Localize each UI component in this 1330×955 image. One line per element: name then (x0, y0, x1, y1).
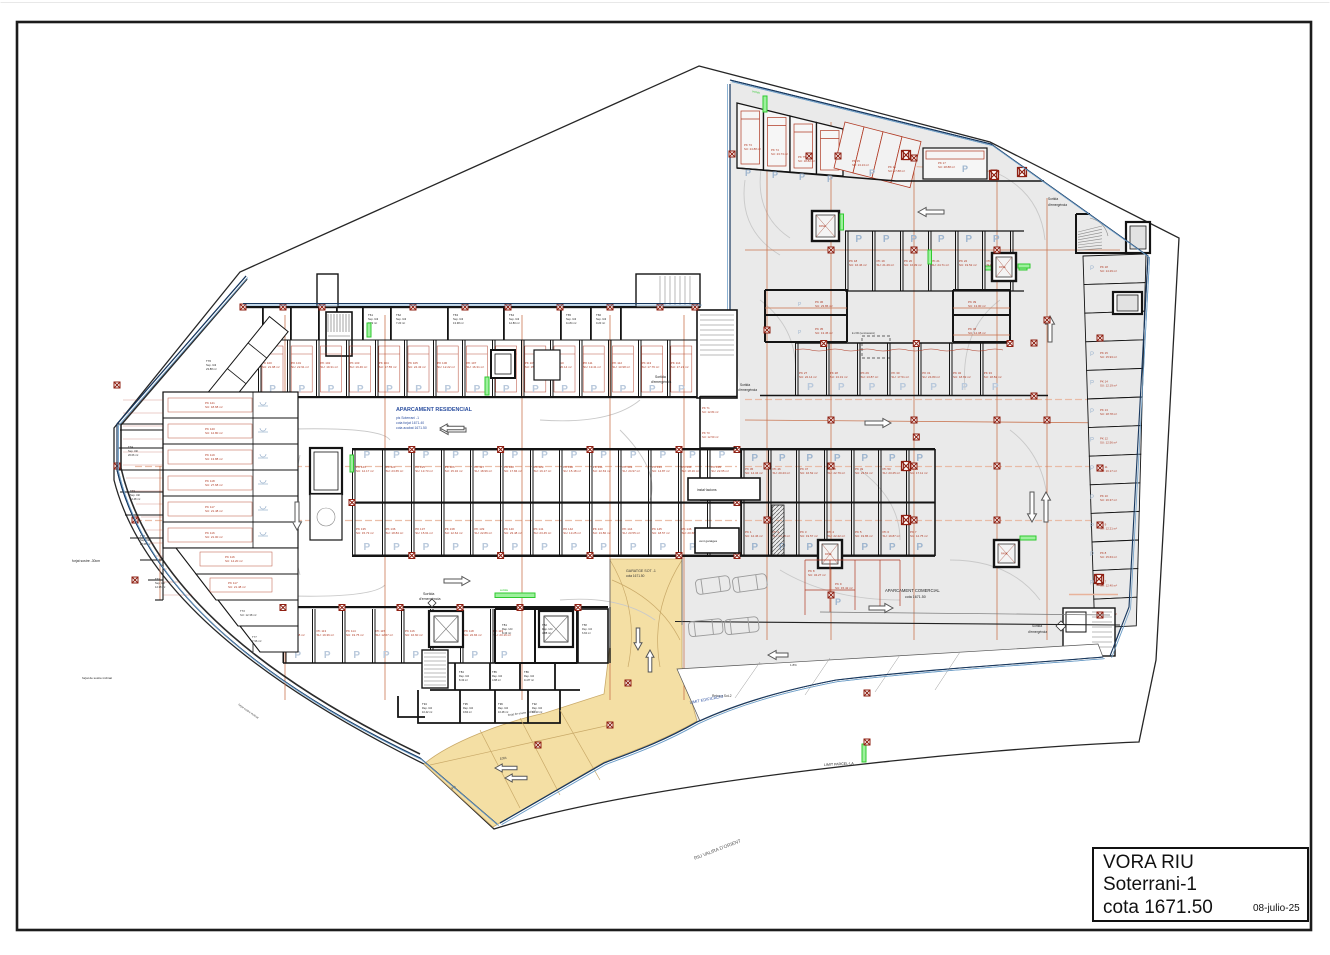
svg-text:SU: 14.20 m²: SU: 14.20 m² (225, 559, 243, 563)
svg-text:P: P (423, 542, 430, 553)
svg-text:SU: 24.71 m²: SU: 24.71 m² (932, 263, 950, 267)
svg-text:d'emergència: d'emergència (738, 388, 757, 392)
svg-text:P: P (965, 234, 972, 245)
svg-text:P: P (861, 542, 868, 553)
svg-text:4.88 m²: 4.88 m² (492, 678, 501, 682)
svg-text:SU: 19.36 m²: SU: 19.36 m² (317, 633, 335, 637)
svg-text:SU: 16.37 m²: SU: 16.37 m² (1100, 498, 1117, 502)
svg-text:SU: 13.31 m²: SU: 13.31 m² (830, 375, 848, 379)
svg-text:8.43 m²: 8.43 m² (502, 631, 511, 635)
svg-text:Sup. Util: Sup. Util (130, 493, 140, 497)
svg-text:P: P (298, 384, 305, 395)
svg-text:P: P (779, 453, 786, 464)
svg-text:P: P (799, 172, 805, 182)
svg-text:cota 1671.50: cota 1671.50 (905, 595, 926, 599)
svg-text:cota acabat 1671.50: cota acabat 1671.50 (396, 426, 427, 430)
svg-text:10.42 m²: 10.42 m² (422, 710, 432, 714)
svg-text:T76: T76 (206, 359, 211, 363)
svg-text:P: P (630, 450, 637, 461)
svg-text:Sup. Util: Sup. Util (155, 581, 165, 585)
svg-text:SU: 12.67 m²: SU: 12.67 m² (376, 633, 394, 637)
svg-text:Sup. Util: Sup. Util (128, 449, 138, 453)
svg-text:SU: 22.91 m²: SU: 22.91 m² (291, 365, 309, 369)
svg-text:P: P (993, 234, 1000, 245)
svg-text:P: P (482, 450, 489, 461)
svg-text:P: P (751, 453, 758, 464)
svg-text:SU: 24.97 m²: SU: 24.97 m² (622, 469, 640, 473)
svg-text:P: P (600, 450, 607, 461)
svg-text:PANE: PANE (999, 266, 1006, 269)
svg-text:Sup. Util: Sup. Util (206, 363, 217, 367)
svg-text:P: P (511, 450, 518, 461)
svg-text:T65: T65 (566, 313, 571, 317)
svg-text:Sup. Util: Sup. Util (396, 317, 407, 321)
svg-text:SU: 19.41 m²: SU: 19.41 m² (583, 365, 601, 369)
svg-text:P: P (412, 650, 419, 661)
svg-text:SU: 18.16 m²: SU: 18.16 m² (682, 469, 700, 473)
svg-text:9.84 m²: 9.84 m² (463, 710, 472, 714)
svg-text:Sup. Util: Sup. Util (566, 317, 577, 321)
svg-text:TT2: TT2 (155, 577, 160, 581)
svg-text:P: P (807, 382, 814, 393)
svg-text:SU: 13.00 m²: SU: 13.00 m² (968, 304, 986, 308)
svg-text:T94: T94 (422, 702, 427, 706)
svg-text:P: P (962, 164, 968, 174)
svg-text:SU: 15.42 m²: SU: 15.42 m² (835, 586, 853, 590)
svg-text:SU: 15.18 m²: SU: 15.18 m² (563, 469, 581, 473)
svg-text:1.8%: 1.8% (790, 663, 797, 667)
svg-text:P: P (471, 650, 478, 661)
svg-text:SU: 13.80 m²: SU: 13.80 m² (593, 531, 611, 535)
svg-text:SU: 20.23 m²: SU: 20.23 m² (773, 471, 791, 475)
svg-text:P: P (324, 650, 331, 661)
svg-text:SU: 12.56 m²: SU: 12.56 m² (1100, 441, 1117, 445)
svg-text:P: P (1090, 466, 1094, 472)
svg-text:P: P (883, 234, 890, 245)
svg-text:d'emergència: d'emergència (1048, 203, 1067, 207)
svg-text:sortida: sortida (500, 588, 508, 592)
svg-text:PANE: PANE (825, 553, 832, 556)
svg-text:P: P (386, 384, 393, 395)
svg-text:SU: 12.17 m²: SU: 12.17 m² (356, 469, 374, 473)
svg-text:cota forjat 1671.40: cota forjat 1671.40 (396, 421, 424, 425)
svg-text:P: P (353, 650, 360, 661)
svg-text:SU: 16.39 m²: SU: 16.39 m² (904, 263, 922, 267)
svg-text:SU: 14.29 m²: SU: 14.29 m² (1100, 269, 1117, 273)
svg-text:P: P (835, 597, 841, 607)
svg-text:P: P (1090, 352, 1094, 358)
svg-text:SU: 12.75 m²: SU: 12.75 m² (910, 534, 928, 538)
svg-text:SU: 19.52 m²: SU: 19.52 m² (959, 263, 977, 267)
svg-text:SU: 18.57 m²: SU: 18.57 m² (652, 531, 670, 535)
svg-text:SU: 16.31 m²: SU: 16.31 m² (466, 365, 484, 369)
svg-text:P: P (452, 450, 459, 461)
svg-text:P: P (620, 384, 627, 395)
svg-text:P: P (532, 384, 539, 395)
svg-text:SU: 19.86 m²: SU: 19.86 m² (855, 534, 873, 538)
svg-text:SU: 12.80 m²: SU: 12.80 m² (205, 431, 223, 435)
svg-text:T81: T81 (502, 623, 507, 627)
svg-text:SU: 15.61 m²: SU: 15.61 m² (415, 531, 433, 535)
svg-text:23.88 m²: 23.88 m² (206, 367, 217, 371)
svg-text:forjat de sostre inclinat: forjat de sostre inclinat (82, 676, 112, 680)
svg-text:SU: 12.84 m²: SU: 12.84 m² (702, 410, 719, 414)
svg-text:SU: 17.84 m²: SU: 17.84 m² (504, 469, 522, 473)
svg-text:P: P (561, 384, 568, 395)
svg-text:d'emergència: d'emergència (651, 380, 671, 384)
svg-text:P: P (930, 382, 937, 393)
svg-text:P: P (393, 450, 400, 461)
svg-text:SU: 19.31 m²: SU: 19.31 m² (320, 365, 338, 369)
svg-text:SU: 17.55 m²: SU: 17.55 m² (379, 365, 397, 369)
svg-text:SU: 14.34 m²: SU: 14.34 m² (745, 471, 763, 475)
svg-text:Sup. Util: Sup. Util (509, 317, 520, 321)
svg-text:E 2.80 (recomanacio): E 2.80 (recomanacio) (852, 332, 875, 335)
svg-text:Sortida: Sortida (655, 375, 666, 379)
svg-text:SU: 17.76 m²: SU: 17.76 m² (642, 365, 660, 369)
svg-text:P: P (452, 542, 459, 553)
svg-text:SU: 18.68 m²: SU: 18.68 m² (205, 405, 223, 409)
svg-text:SU: 17.21 m²: SU: 17.21 m² (671, 365, 689, 369)
svg-text:SU: 13.73 m²: SU: 13.73 m² (415, 469, 433, 473)
svg-text:P: P (541, 542, 548, 553)
svg-text:SU: 12.64 m²: SU: 12.64 m² (445, 531, 463, 535)
svg-text:T84: T84 (459, 670, 464, 674)
svg-text:P: P (961, 382, 968, 393)
svg-text:SU: 12.50 m²: SU: 12.50 m² (702, 435, 719, 439)
svg-text:P: P (899, 382, 906, 393)
svg-text:11.87 m²: 11.87 m² (524, 678, 534, 682)
svg-text:SU: 22.79 m²: SU: 22.79 m² (828, 471, 846, 475)
svg-text:SU: 28.88 m²: SU: 28.88 m² (938, 165, 955, 169)
svg-text:instal·lacions: instal·lacions (697, 488, 717, 492)
svg-text:SU: 12.19 m²: SU: 12.19 m² (1100, 383, 1117, 387)
svg-text:SU: 24.80 m²: SU: 24.80 m² (922, 375, 940, 379)
svg-text:T92: T92 (532, 702, 537, 706)
svg-text:P: P (363, 542, 370, 553)
svg-text:P: P (423, 450, 430, 461)
svg-text:Rep. Util: Rep. Util (492, 674, 502, 678)
svg-text:T58: T58 (582, 623, 587, 627)
svg-text:SU: 21.00 m²: SU: 21.00 m² (205, 535, 223, 539)
svg-text:P: P (806, 542, 813, 553)
svg-text:Rep. Util: Rep. Util (498, 706, 508, 710)
svg-text:SU: 19.57 m²: SU: 19.57 m² (800, 534, 818, 538)
svg-text:P: P (444, 384, 451, 395)
svg-text:Rep. Util: Rep. Util (582, 627, 592, 631)
svg-text:GARATGE SOT -1: GARATGE SOT -1 (626, 569, 656, 573)
svg-text:TT3: TT3 (130, 489, 135, 493)
svg-text:P: P (992, 382, 999, 393)
svg-text:P: P (889, 453, 896, 464)
svg-text:SU: 13.87 m²: SU: 13.87 m² (861, 375, 879, 379)
svg-text:SU: 12.46 m²: SU: 12.46 m² (745, 534, 763, 538)
svg-text:P: P (855, 234, 862, 245)
svg-text:20.06 m²: 20.06 m² (128, 453, 138, 457)
svg-text:TT4: TT4 (128, 445, 133, 449)
svg-text:08-julio-25: 08-julio-25 (1253, 903, 1300, 914)
svg-text:P: P (363, 450, 370, 461)
svg-text:SU: 17.88 m²: SU: 17.88 m² (888, 169, 905, 173)
svg-text:SU: 16.52 m²: SU: 16.52 m² (800, 471, 818, 475)
svg-text:SU: 23.51 m²: SU: 23.51 m² (855, 471, 873, 475)
svg-text:P: P (806, 453, 813, 464)
svg-text:T62: T62 (396, 313, 401, 317)
svg-text:P: P (571, 542, 578, 553)
svg-text:T66: T66 (596, 313, 601, 317)
svg-text:SU: 19.87 m²: SU: 19.87 m² (883, 534, 901, 538)
svg-text:SU: 22.86 m²: SU: 22.86 m² (474, 531, 492, 535)
svg-text:4.88 m²: 4.88 m² (542, 631, 551, 635)
svg-text:SU: 21.98 m²: SU: 21.98 m² (262, 365, 280, 369)
svg-text:SU: 19.46 m²: SU: 19.46 m² (350, 365, 368, 369)
svg-text:P: P (751, 542, 758, 553)
svg-text:P: P (916, 542, 923, 553)
svg-text:P: P (745, 168, 751, 178)
svg-text:SU: 12.22 m²: SU: 12.22 m² (437, 365, 455, 369)
svg-text:P: P (1090, 523, 1094, 529)
svg-text:SU: 17.51 m²: SU: 17.51 m² (891, 375, 909, 379)
svg-text:SU: 22.63 m²: SU: 22.63 m² (593, 469, 611, 473)
svg-text:P: P (910, 234, 917, 245)
svg-text:Rep. Util: Rep. Util (463, 706, 473, 710)
svg-text:T86: T86 (524, 670, 529, 674)
svg-text:SU: 15.63 m²: SU: 15.63 m² (1100, 555, 1117, 559)
svg-text:P: P (827, 174, 833, 184)
svg-text:13.38 m²: 13.38 m² (453, 321, 464, 325)
svg-text:VORA RIU: VORA RIU (1103, 852, 1194, 873)
svg-text:7.20 m²: 7.20 m² (396, 321, 405, 325)
svg-text:SU: 18.96 m²: SU: 18.96 m² (474, 469, 492, 473)
svg-text:SU: 13.98 m²: SU: 13.98 m² (612, 365, 630, 369)
svg-text:P: P (1090, 380, 1094, 386)
svg-text:P: P (415, 384, 422, 395)
svg-text:P: P (474, 384, 481, 395)
svg-text:P: P (328, 384, 335, 395)
svg-text:P: P (1090, 409, 1094, 415)
svg-text:APARCAMENT RESIDENCIAL: APARCAMENT RESIDENCIAL (396, 407, 473, 413)
svg-text:P: P (869, 168, 875, 178)
svg-text:SU: 15.73 m²: SU: 15.73 m² (356, 531, 374, 535)
svg-text:7.96 m²: 7.96 m² (252, 639, 262, 643)
svg-text:SU: 23.86 m²: SU: 23.86 m² (815, 304, 833, 308)
svg-text:SU: 19.17 m²: SU: 19.17 m² (534, 469, 552, 473)
svg-text:P: P (861, 453, 868, 464)
svg-text:SU: 27.68 m²: SU: 27.68 m² (205, 483, 223, 487)
svg-text:SU: 17.11 m²: SU: 17.11 m² (910, 471, 927, 475)
svg-text:P: P (1090, 552, 1094, 558)
svg-text:0.20 m²: 0.20 m² (596, 321, 605, 325)
svg-text:P: P (772, 170, 778, 180)
svg-text:SU: 34.27 m²: SU: 34.27 m² (808, 573, 826, 577)
svg-text:Soterrani-1: Soterrani-1 (1103, 874, 1197, 895)
svg-text:SU: 22.84 m²: SU: 22.84 m² (464, 633, 482, 637)
svg-text:P: P (501, 650, 508, 661)
svg-text:8.43 m²: 8.43 m² (459, 678, 468, 682)
svg-text:vent garatges: vent garatges (699, 539, 718, 543)
svg-text:P: P (600, 542, 607, 553)
svg-text:P: P (383, 650, 390, 661)
svg-text:P: P (511, 542, 518, 553)
svg-text:Rep. Util: Rep. Util (502, 627, 513, 631)
svg-text:P: P (357, 384, 364, 395)
svg-text:SU: 18.82 m²: SU: 18.82 m² (798, 159, 815, 163)
svg-text:11.84 m²: 11.84 m² (566, 321, 577, 325)
svg-text:P: P (916, 453, 923, 464)
svg-text:SU: 23.25 m²: SU: 23.25 m² (883, 471, 901, 475)
svg-text:P: P (482, 542, 489, 553)
svg-text:Sup. Util: Sup. Util (596, 317, 607, 321)
svg-text:P: P (571, 450, 578, 461)
svg-text:T61: T61 (368, 313, 373, 317)
svg-text:SU: 21.48 m²: SU: 21.48 m² (228, 585, 246, 589)
svg-text:SU: 13.13 m²: SU: 13.13 m² (852, 163, 869, 167)
svg-text:SU: 18.82 m²: SU: 18.82 m² (984, 375, 1002, 379)
svg-text:Rep. Util: Rep. Util (422, 706, 432, 710)
svg-text:P: P (889, 542, 896, 553)
svg-text:P: P (541, 450, 548, 461)
svg-text:Rep. Util: Rep. Util (459, 674, 469, 678)
svg-text:Rep. Util: Rep. Util (524, 674, 534, 678)
svg-text:d'emergència: d'emergència (1028, 630, 1047, 634)
svg-text:Sup. Util: Sup. Util (368, 317, 379, 321)
svg-text:P: P (719, 450, 726, 461)
svg-text:SU: 23.73 m²: SU: 23.73 m² (771, 152, 788, 156)
svg-text:SU: 13.25 m²: SU: 13.25 m² (563, 531, 581, 535)
svg-text:P: P (659, 542, 666, 553)
svg-text:P: P (869, 382, 876, 393)
svg-text:12.80 m²: 12.80 m² (509, 321, 520, 325)
svg-text:forjat sostre -30cm: forjat sostre -30cm (72, 559, 100, 563)
svg-text:P: P (689, 450, 696, 461)
svg-text:SU: 21.29 m²: SU: 21.29 m² (877, 263, 895, 267)
svg-text:T82: T82 (542, 623, 547, 627)
svg-text:SU: 13.88 m²: SU: 13.88 m² (205, 457, 223, 461)
svg-text:SU: 21.48 m²: SU: 21.48 m² (205, 509, 223, 513)
svg-text:P: P (834, 453, 841, 464)
svg-text:6.84 m²: 6.84 m² (582, 631, 591, 635)
svg-text:SU: 14.87 m²: SU: 14.87 m² (652, 469, 670, 473)
svg-text:cota 1671.50: cota 1671.50 (626, 574, 645, 578)
svg-text:SU: 24.43 m²: SU: 24.43 m² (408, 365, 426, 369)
svg-text:SU: 22.22 m²: SU: 22.22 m² (828, 534, 846, 538)
svg-text:SU: 16.60 m²: SU: 16.60 m² (405, 633, 423, 637)
svg-text:SU: 12.38 m²: SU: 12.38 m² (240, 613, 257, 617)
svg-text:P: P (838, 382, 845, 393)
svg-text:SU: 15.32 m²: SU: 15.32 m² (445, 469, 463, 473)
svg-text:SU: 22.65 m²: SU: 22.65 m² (711, 469, 729, 473)
svg-text:Sup. Util: Sup. Util (453, 317, 464, 321)
svg-text:pis Soterrani -1: pis Soterrani -1 (396, 416, 419, 420)
svg-text:PANE: PANE (1001, 553, 1008, 556)
svg-text:P: P (678, 384, 685, 395)
svg-text:SU: 24.88 m²: SU: 24.88 m² (744, 147, 761, 151)
svg-text:APARCAMENT COMERCIAL: APARCAMENT COMERCIAL (885, 588, 940, 593)
svg-text:P: P (1090, 266, 1094, 272)
svg-text:Sortida: Sortida (740, 383, 750, 387)
svg-text:12.38 m²: 12.38 m² (155, 585, 165, 589)
svg-text:P: P (1090, 438, 1094, 444)
svg-text:P: P (659, 450, 666, 461)
svg-text:P: P (1090, 581, 1094, 587)
svg-text:SU: 14.08 m²: SU: 14.08 m² (968, 331, 986, 335)
svg-text:d'emergència: d'emergència (419, 597, 440, 601)
svg-text:P: P (630, 542, 637, 553)
svg-text:P: P (503, 384, 510, 395)
svg-text:cota 1671.50: cota 1671.50 (1103, 897, 1213, 918)
svg-text:P: P (393, 542, 400, 553)
svg-text:T64: T64 (509, 313, 514, 317)
svg-text:SU: 23.55 m²: SU: 23.55 m² (622, 531, 640, 535)
svg-text:T96: T96 (498, 702, 503, 706)
svg-text:T95: T95 (463, 702, 468, 706)
svg-text:T85: T85 (492, 670, 497, 674)
svg-text:SU: 22.14 m²: SU: 22.14 m² (799, 375, 817, 379)
svg-text:P: P (1090, 495, 1094, 501)
svg-text:SU: 16.46 m²: SU: 16.46 m² (849, 263, 867, 267)
svg-text:SU: 19.75 m²: SU: 19.75 m² (346, 633, 364, 637)
svg-text:SU: 23.65 m²: SU: 23.65 m² (386, 469, 404, 473)
svg-text:P: P (938, 234, 945, 245)
svg-text:Sortida: Sortida (1048, 197, 1058, 201)
svg-text:P: P (590, 384, 597, 395)
svg-text:SU: 18.69 m²: SU: 18.69 m² (953, 375, 971, 379)
svg-text:SU: 23.45 m²: SU: 23.45 m² (534, 531, 552, 535)
svg-text:SU: 18.78 m²: SU: 18.78 m² (1100, 412, 1117, 416)
svg-text:SU: 13.45 m²: SU: 13.45 m² (815, 331, 833, 335)
svg-text:12.48 m²: 12.48 m² (130, 497, 140, 501)
svg-text:PANE: PANE (819, 225, 826, 228)
svg-text:SU: 15.93 m²: SU: 15.93 m² (1100, 355, 1117, 359)
svg-text:Rep. Util: Rep. Util (542, 627, 553, 631)
svg-text:T63: T63 (453, 313, 458, 317)
svg-text:SU: 18.84 m²: SU: 18.84 m² (386, 531, 404, 535)
svg-text:SU: 23.48 m²: SU: 23.48 m² (504, 531, 522, 535)
svg-text:P: P (649, 384, 656, 395)
svg-text:Sortida: Sortida (423, 592, 434, 596)
